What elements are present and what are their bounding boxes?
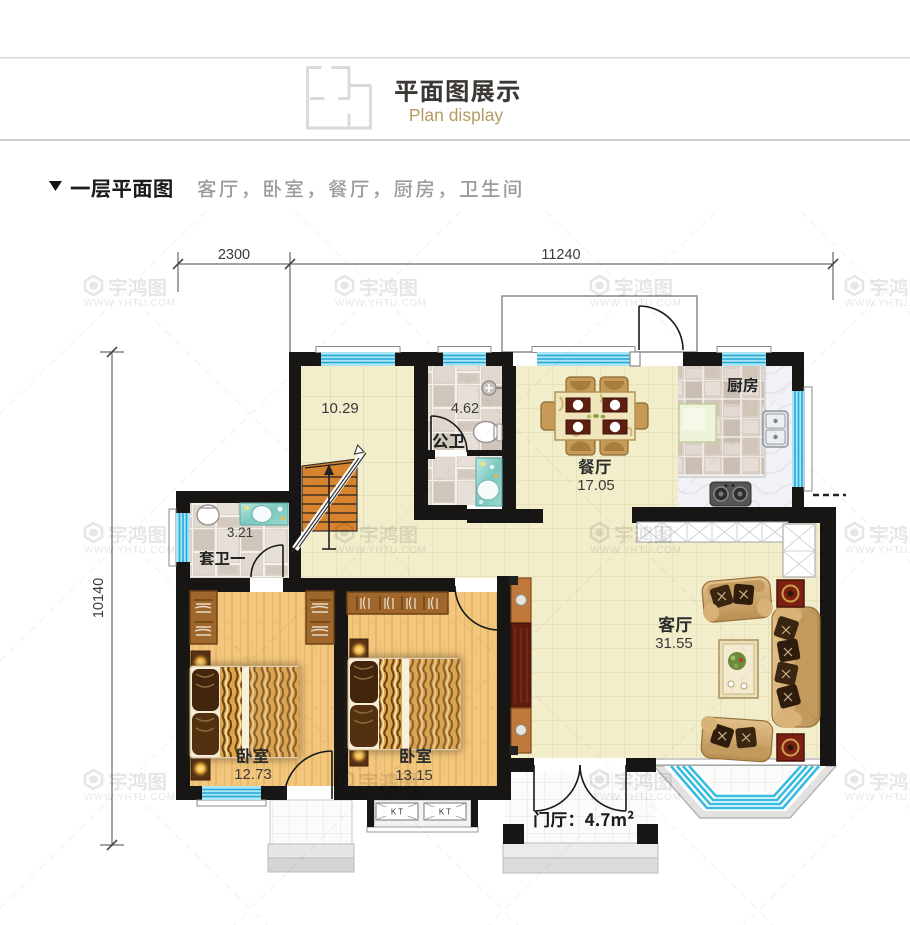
svg-text:K T: K T xyxy=(391,808,403,817)
svg-text:17.05: 17.05 xyxy=(577,477,615,494)
svg-text:Plan display: Plan display xyxy=(409,105,504,125)
svg-text:12.73: 12.73 xyxy=(234,766,272,783)
svg-text:31.55: 31.55 xyxy=(655,635,693,652)
svg-text:10140: 10140 xyxy=(91,578,107,618)
svg-text:4.62: 4.62 xyxy=(451,401,479,417)
svg-text:11240: 11240 xyxy=(541,247,580,263)
svg-text:3.21: 3.21 xyxy=(227,525,253,540)
svg-text:10.29: 10.29 xyxy=(321,400,359,417)
svg-text:K T: K T xyxy=(439,808,451,817)
svg-text:2300: 2300 xyxy=(218,247,250,263)
